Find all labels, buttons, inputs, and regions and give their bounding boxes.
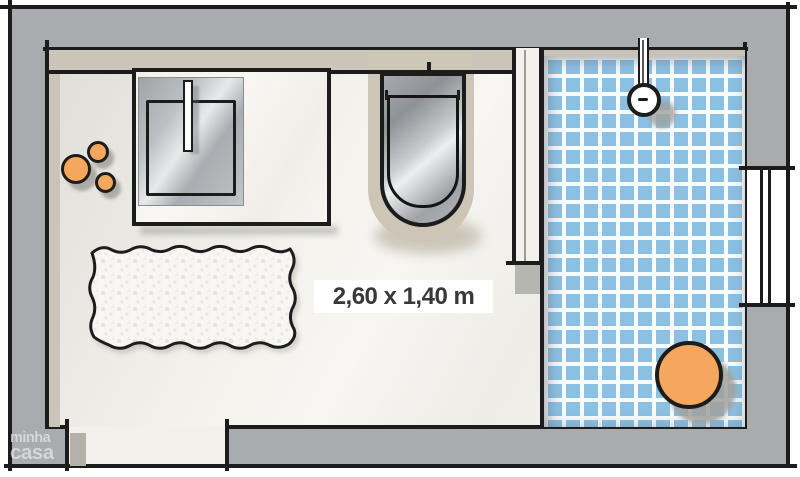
dimension-text: 2,60 x 1,40 m bbox=[333, 283, 475, 311]
bath-rug bbox=[84, 241, 300, 356]
door-opening bbox=[68, 427, 225, 466]
toiletry-small-bottom bbox=[95, 172, 116, 193]
toiletry-large bbox=[61, 154, 91, 184]
shower-stool bbox=[655, 341, 723, 409]
counter-shadow bbox=[140, 226, 338, 235]
toilet-inner-rim bbox=[387, 95, 459, 208]
wall-lining-left bbox=[49, 50, 60, 427]
toilet-rim-tick bbox=[385, 90, 388, 100]
outer-wall-line-left bbox=[8, 0, 12, 471]
outer-wall-line-top bbox=[0, 5, 797, 9]
window-pane-line bbox=[768, 168, 771, 305]
outer-wall-line-right bbox=[786, 2, 790, 468]
outer-wall-line-bottom bbox=[4, 464, 797, 468]
faucet-icon bbox=[183, 80, 193, 152]
door-jamb-right bbox=[225, 419, 229, 471]
partition-inner-line bbox=[524, 50, 526, 262]
shower-nozzle bbox=[638, 98, 648, 101]
shower-curb-line bbox=[540, 48, 544, 427]
window-cap-top bbox=[739, 166, 795, 170]
window-pane-line bbox=[760, 168, 763, 305]
brand-logo: minha casa bbox=[10, 433, 68, 462]
brand-line-2: casa bbox=[10, 445, 68, 462]
toiletry-small-top bbox=[87, 141, 109, 163]
door-frame-stub bbox=[70, 433, 86, 466]
floor-plan: 2,60 x 1,40 m minha casa bbox=[0, 0, 800, 477]
window-cap-bottom bbox=[739, 303, 795, 307]
toilet-rim-tick bbox=[457, 90, 460, 100]
partition-wall bbox=[512, 48, 543, 264]
dimension-label: 2,60 x 1,40 m bbox=[314, 280, 493, 313]
